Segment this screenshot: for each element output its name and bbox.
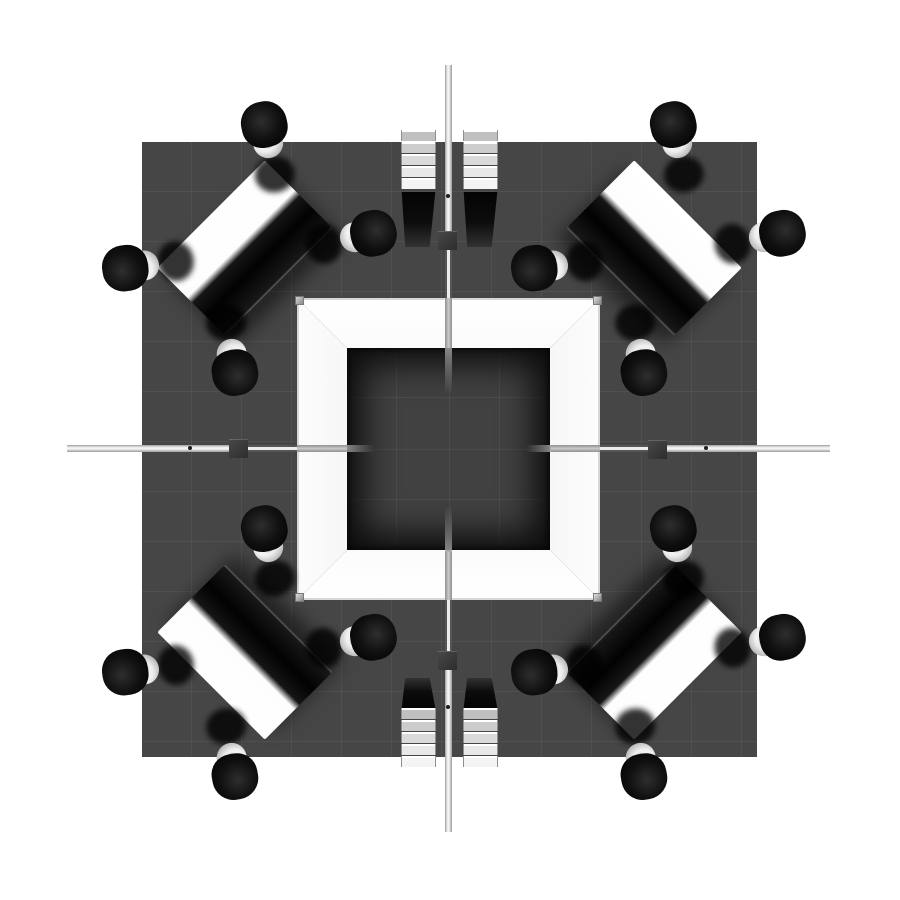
truss-beam-vertical-stub <box>445 506 452 552</box>
shelf-slat <box>401 166 436 177</box>
chair-cast-shadow <box>155 643 196 688</box>
chair-cast-shadow <box>711 625 755 672</box>
truss-beam-vertical-light <box>445 670 452 832</box>
shelf-slat <box>401 130 436 141</box>
shelf-slat <box>401 720 436 731</box>
shelf-slat <box>463 130 498 141</box>
shelf-slat <box>463 142 498 153</box>
shelf-slat <box>463 744 498 755</box>
shelf-slat <box>463 708 498 719</box>
shelf-cast-shadow <box>401 192 436 247</box>
truss-beam-horizontal-wall <box>551 445 600 452</box>
truss-beam-vertical-rail <box>445 249 452 298</box>
truss-beam-vertical-rail <box>445 600 452 651</box>
tower-corner-post <box>593 593 602 602</box>
truss-beam-vertical-wall <box>445 552 452 600</box>
beam-connector-block <box>438 651 457 670</box>
shelf-slat <box>463 756 498 767</box>
shelf-slat <box>463 720 498 731</box>
shelf-slat <box>401 756 436 767</box>
shelf-slat <box>463 178 498 189</box>
chair-cast-shadow <box>203 705 249 747</box>
truss-beam-horizontal-light <box>667 445 830 452</box>
shelf-slat <box>401 154 436 165</box>
chair-cast-shadow <box>302 221 346 268</box>
beam-rivet <box>446 194 450 198</box>
shelf-bottom-left <box>401 678 436 768</box>
beam-connector-block <box>229 439 248 458</box>
chair-cast-shadow <box>564 239 605 284</box>
beam-rivet <box>188 446 192 450</box>
beam-connector-block <box>438 231 457 250</box>
shelf-slat <box>401 744 436 755</box>
shelf-cast-shadow <box>463 678 498 708</box>
truss-beam-horizontal-rail <box>248 445 297 452</box>
beam-connector-block <box>648 440 667 459</box>
chair-cast-shadow <box>612 301 658 343</box>
truss-beam-vertical-wall <box>445 298 452 348</box>
shelf-slat <box>401 732 436 743</box>
truss-beam-horizontal-wall <box>297 445 347 452</box>
shelf-top-right <box>463 130 498 247</box>
beam-rivet <box>446 705 450 709</box>
chair-cast-shadow <box>302 625 346 672</box>
chair-cast-shadow <box>612 705 658 747</box>
tower-corner-post <box>295 593 304 602</box>
shelf-top-left <box>401 130 436 247</box>
booth-overhead-render <box>0 0 900 900</box>
truss-beam-horizontal-rail <box>600 445 648 452</box>
shelf-slat <box>463 166 498 177</box>
truss-beam-horizontal-stub <box>347 445 374 452</box>
chair-cast-shadow <box>155 239 196 284</box>
tower-corner-post <box>593 296 602 305</box>
shelf-slat <box>463 154 498 165</box>
truss-beam-vertical-stub <box>445 348 452 394</box>
shelf-slat <box>401 708 436 719</box>
shelf-slat <box>401 142 436 153</box>
tower-corner-post <box>295 296 304 305</box>
beam-rivet <box>704 446 708 450</box>
shelf-cast-shadow <box>463 192 498 247</box>
truss-beam-vertical-light <box>445 65 452 231</box>
shelf-cast-shadow <box>401 678 436 708</box>
chair-cast-shadow <box>564 643 605 688</box>
truss-beam-horizontal-light <box>67 445 229 452</box>
shelf-slat <box>463 732 498 743</box>
shelf-bottom-right <box>463 678 498 768</box>
chair-cast-shadow <box>711 221 755 268</box>
truss-beam-horizontal-stub <box>526 445 551 452</box>
chair-cast-shadow <box>203 301 249 343</box>
shelf-slat <box>401 178 436 189</box>
